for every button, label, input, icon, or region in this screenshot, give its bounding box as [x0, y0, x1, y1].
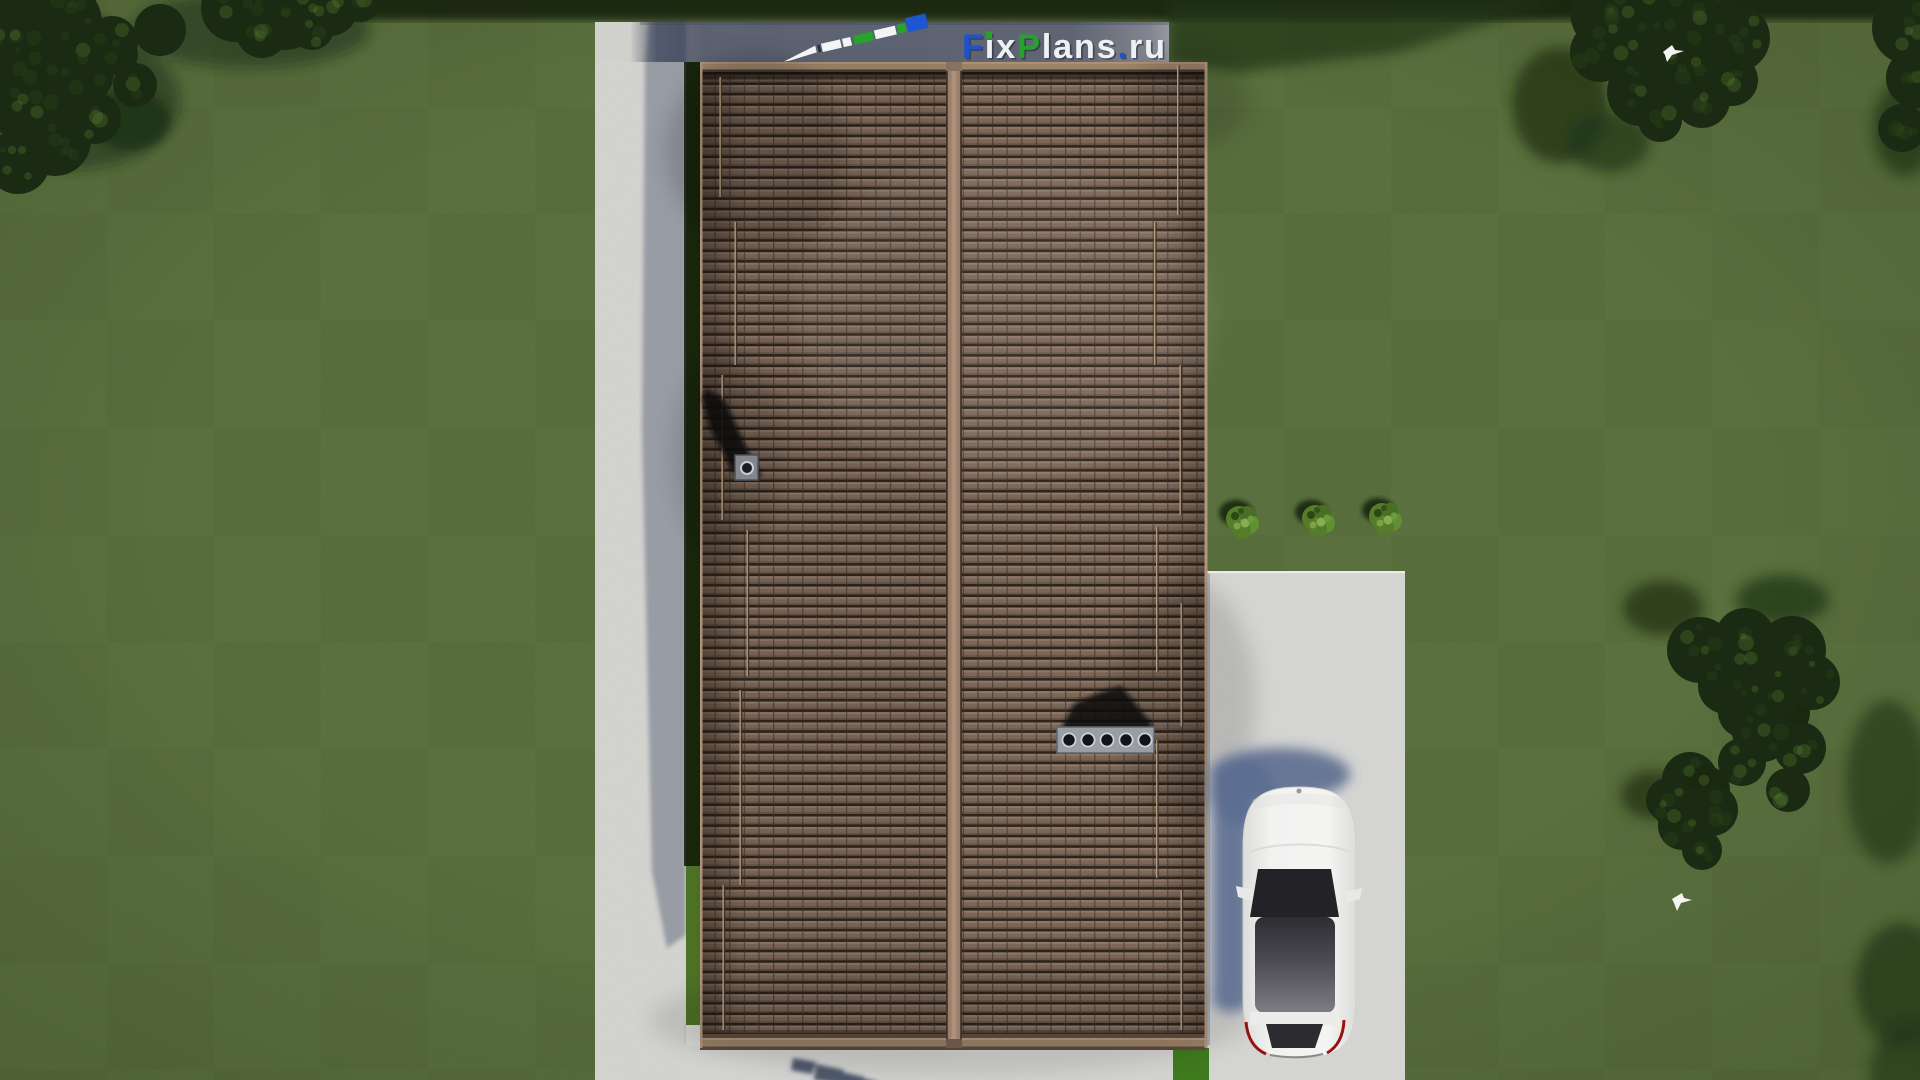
svg-text:FixPlans.ru: FixPlans.ru: [962, 28, 1167, 66]
